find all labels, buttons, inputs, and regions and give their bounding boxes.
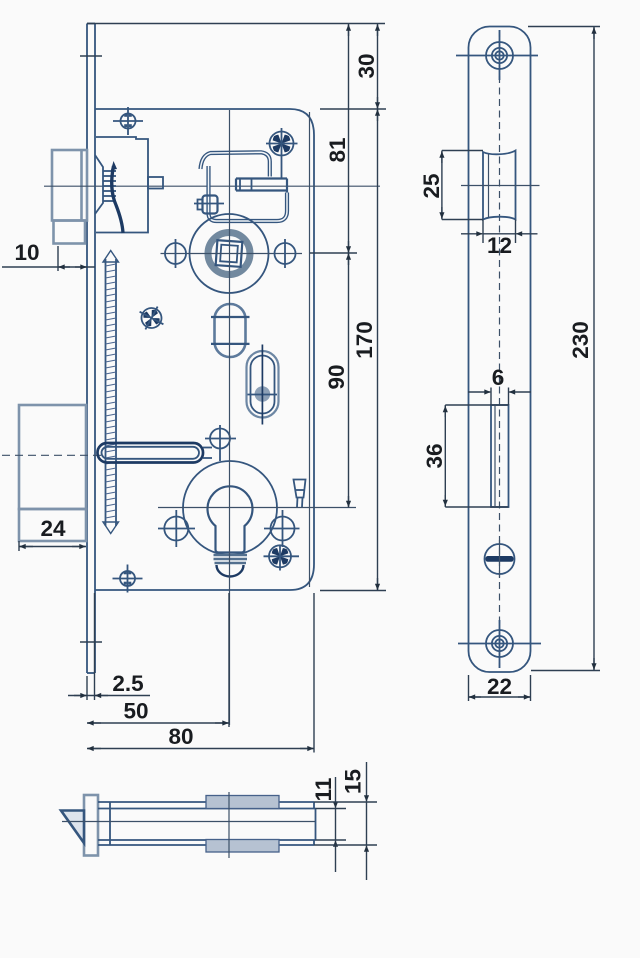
svg-text:170: 170: [352, 321, 377, 359]
svg-text:230: 230: [568, 321, 593, 359]
svg-text:15: 15: [341, 769, 366, 794]
svg-text:90: 90: [324, 364, 349, 389]
svg-text:2.5: 2.5: [112, 671, 143, 696]
svg-text:10: 10: [14, 240, 39, 265]
svg-text:6: 6: [492, 365, 505, 390]
svg-text:36: 36: [422, 443, 447, 468]
svg-text:50: 50: [123, 699, 148, 724]
svg-text:22: 22: [487, 674, 512, 699]
svg-text:81: 81: [325, 137, 350, 162]
svg-text:12: 12: [487, 233, 512, 258]
svg-text:25: 25: [419, 173, 444, 198]
svg-text:11: 11: [311, 778, 336, 802]
svg-text:24: 24: [40, 516, 66, 541]
svg-text:30: 30: [354, 53, 379, 78]
svg-text:80: 80: [168, 724, 193, 749]
